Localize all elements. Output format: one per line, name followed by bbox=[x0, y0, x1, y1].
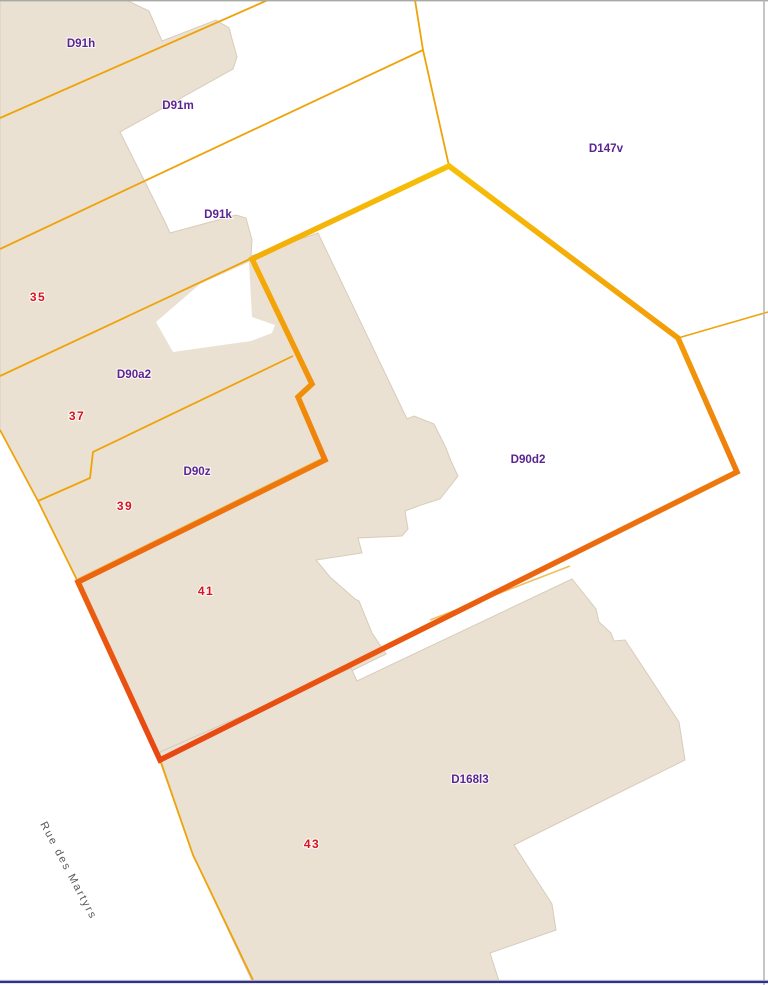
svg-text:D90a2: D90a2 bbox=[117, 368, 151, 381]
svg-text:35: 35 bbox=[30, 290, 46, 304]
svg-text:D168l3: D168l3 bbox=[451, 773, 489, 786]
svg-text:39: 39 bbox=[117, 499, 133, 513]
svg-text:37: 37 bbox=[69, 409, 85, 423]
svg-text:D91h: D91h bbox=[67, 37, 95, 50]
svg-text:D147v: D147v bbox=[589, 142, 624, 155]
svg-text:41: 41 bbox=[198, 584, 214, 598]
svg-text:D91k: D91k bbox=[204, 208, 232, 221]
svg-text:D91m: D91m bbox=[162, 99, 194, 112]
svg-text:D90d2: D90d2 bbox=[511, 453, 546, 466]
svg-text:43: 43 bbox=[304, 837, 320, 851]
svg-text:D90z: D90z bbox=[183, 465, 210, 478]
